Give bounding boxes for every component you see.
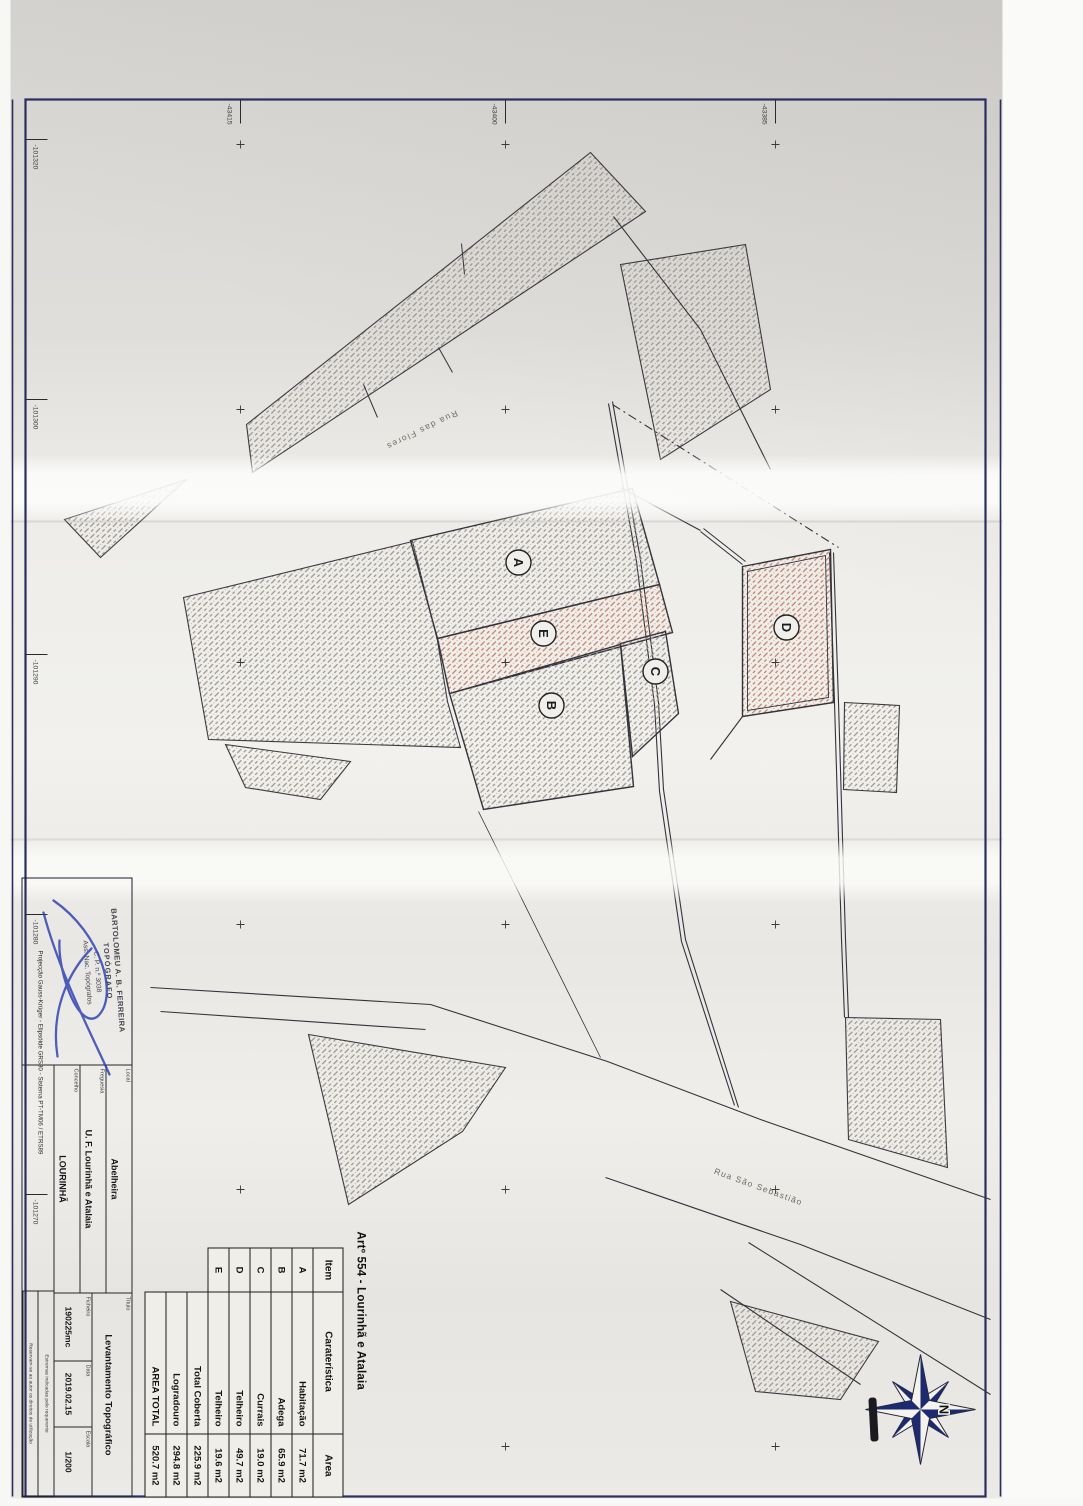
field-freguesia-value: U. F. Lourinhã e Atalaia — [81, 1066, 98, 1293]
field-escala-value: 1/200 — [55, 1428, 84, 1497]
street-label-rua-das-flores: Rua das Flores — [384, 408, 459, 451]
table-row: C Currais 19.0 m2 — [250, 1248, 271, 1497]
building-label-e: E — [531, 621, 556, 646]
notes-box: Estremas indicadas pelo requerente Reser… — [23, 1291, 55, 1497]
northing-label-1: -43385 — [761, 104, 768, 125]
cell-total-coberta-value: 225.9 m2 — [187, 1434, 208, 1497]
ink-mark — [868, 1397, 878, 1441]
cell-item-a: A — [292, 1248, 313, 1292]
cell-area-b: 65.9 m2 — [271, 1434, 292, 1497]
cell-item-c: C — [250, 1248, 271, 1292]
easting-label-2: -101300 — [32, 405, 39, 430]
field-local-label: Local — [125, 1069, 131, 1082]
table-total-row: AREA TOTAL 520.7 m2 — [145, 1248, 166, 1497]
surveyed-buildings — [411, 489, 834, 810]
scanned-survey-plan: A B C D E Rua — [0, 0, 1083, 1506]
empty-cell — [145, 1248, 166, 1292]
cell-area-total-label: AREA TOTAL — [145, 1292, 166, 1434]
field-local-value: Abelheira — [107, 1066, 124, 1293]
note-estremas: Estremas indicadas pelo requerente — [38, 1292, 54, 1496]
table-total-row: Logradouro 294.8 m2 — [166, 1248, 187, 1497]
field-titulo-value: Levantamento Topográfico — [93, 1294, 124, 1497]
cell-area-total-value: 520.7 m2 — [145, 1434, 166, 1497]
field-titulo: Título Levantamento Topográfico — [92, 1293, 133, 1498]
header-item: Item — [313, 1248, 343, 1292]
field-concelho-value: LOURINHÃ — [55, 1066, 72, 1293]
field-concelho: Concelho LOURINHÃ — [54, 1065, 81, 1294]
neighbour-block-southeast-2 — [731, 1302, 879, 1400]
cell-item-d: D — [229, 1248, 250, 1292]
table-total-row: Total Coberta 225.9 m2 — [187, 1248, 208, 1497]
road-west-edge-1 — [151, 988, 431, 1005]
field-freguesia-label: Freguesia — [99, 1069, 105, 1094]
field-escala-label: Escala — [85, 1431, 91, 1448]
path-to-d-2 — [704, 529, 746, 562]
cell-area-d: 49.7 m2 — [229, 1434, 250, 1497]
field-titulo-label: Título — [125, 1297, 131, 1311]
building-letter-d: D — [779, 623, 794, 632]
north-label: N — [937, 1405, 952, 1414]
building-label-b: B — [539, 693, 564, 718]
surveyor-stamp: BARTOLOMEU A. B. FERREIRA TOPÓGRAFO C. P… — [75, 885, 129, 1058]
field-freguesia: Freguesia U. F. Lourinhã e Atalaia — [80, 1065, 107, 1294]
building-letter-e: E — [536, 629, 551, 638]
easting-label-1: -101320 — [32, 145, 39, 170]
building-letter-a: A — [511, 558, 526, 568]
building-letter-b: B — [544, 701, 559, 710]
field-local: Local Abelheira — [106, 1065, 133, 1294]
boundary-d-to-b — [711, 717, 743, 760]
field-ficheiro-value: 190225mc — [55, 1294, 84, 1361]
field-escala: Escala 1/200 — [54, 1427, 93, 1498]
neighbour-block-southeast-1 — [846, 1018, 948, 1168]
cell-item-b: B — [271, 1248, 292, 1292]
road-lines — [151, 217, 991, 1395]
neighbour-sliver-west — [226, 745, 351, 800]
field-concelho-label: Concelho — [73, 1069, 79, 1093]
northing-label-2: -43400 — [491, 104, 498, 125]
table-header-row: Item Caraterística Area — [313, 1248, 343, 1497]
road-west-edge-2 — [161, 1012, 426, 1030]
northing-label-3: -43415 — [226, 104, 233, 125]
compass-rose: N — [866, 1355, 976, 1465]
cell-car-c: Currais — [250, 1292, 271, 1434]
cell-logradouro-value: 294.8 m2 — [166, 1434, 187, 1497]
building-label-d: D — [774, 615, 799, 640]
table-row: A Habitação 71.7 m2 — [292, 1248, 313, 1497]
area-table: Item Caraterística Area A Habitação 71.7… — [145, 1248, 344, 1498]
cell-car-d: Telheiro — [229, 1292, 250, 1434]
note-direitos: Reservam-se ao autor os direitos de util… — [23, 1292, 38, 1496]
article-title: Artº 554 - Lourinhã e Atalaia — [355, 1232, 367, 1500]
field-data-value: 2019.02.15 — [55, 1362, 84, 1427]
field-ficheiro: Ficheiro 190225mc — [54, 1293, 93, 1362]
street-label-rua-sao-sebastiao: Rua São Sebastião — [713, 1166, 804, 1207]
field-data-label: Data — [85, 1365, 91, 1377]
projection-note: Projecção Gauss-Krüger - Elipsóide GRS80… — [37, 951, 44, 1155]
cell-total-coberta-label: Total Coberta — [187, 1292, 208, 1434]
cell-logradouro-label: Logradouro — [166, 1292, 187, 1434]
cell-car-e: Telheiro — [208, 1292, 229, 1434]
title-block: BARTOLOMEU A. B. FERREIRA TOPÓGRAFO C. P… — [22, 878, 133, 1498]
header-area: Area — [313, 1434, 343, 1497]
field-data: Data 2019.02.15 — [54, 1361, 93, 1428]
cell-car-a: Habitação — [292, 1292, 313, 1434]
empty-cell — [187, 1248, 208, 1292]
building-letter-c: C — [648, 667, 663, 677]
field-ficheiro-label: Ficheiro — [85, 1297, 91, 1317]
easting-label-3: -101290 — [32, 660, 39, 685]
path-to-d-1 — [701, 532, 743, 565]
table-row: D Telheiro 49.7 m2 — [229, 1248, 250, 1497]
cell-item-e: E — [208, 1248, 229, 1292]
empty-cell — [166, 1248, 187, 1292]
area-table-section: Artº 554 - Lourinhã e Atalaia Item Carat… — [355, 1232, 367, 1500]
cell-car-b: Adega — [271, 1292, 292, 1434]
building-label-c: C — [643, 659, 668, 684]
neighbour-block-east — [844, 703, 900, 793]
building-label-a: A — [506, 550, 531, 575]
neighbour-block-north — [621, 245, 771, 460]
cell-area-a: 71.7 m2 — [292, 1434, 313, 1497]
plan-sheet: A B C D E Rua — [1, 0, 1083, 1506]
table-row: E Telheiro 19.6 m2 — [208, 1248, 229, 1497]
header-caracteristica: Caraterística — [313, 1292, 343, 1434]
neighbour-block-southwest — [309, 1035, 506, 1205]
cell-area-e: 19.6 m2 — [208, 1434, 229, 1497]
table-row: B Adega 65.9 m2 — [271, 1248, 292, 1497]
cell-area-c: 19.0 m2 — [250, 1434, 271, 1497]
